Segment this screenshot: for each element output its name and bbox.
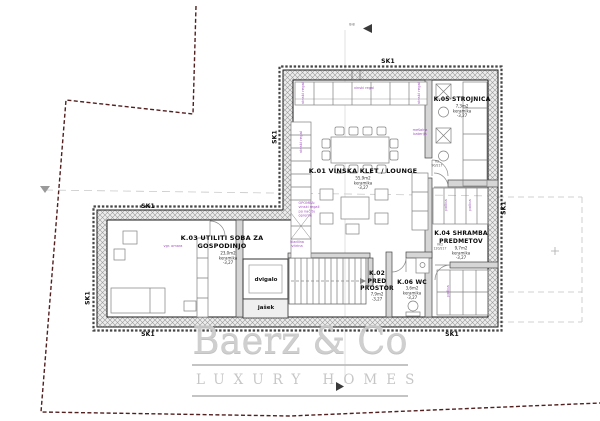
room-info-k01: 55,9m2keramika-3,27 (354, 176, 372, 190)
door-tag-v2: V290/217 (431, 160, 442, 167)
annotation-note: OPOMBA:vinski regali po načrtuopreme (298, 201, 319, 218)
floor-plan-drawing: K.01 VINSKA KLET / LOUNGE 55,9m2keramika… (0, 0, 600, 421)
wall-tag-sk1-wing-top: SK1 (141, 203, 155, 211)
room-info-k06: 3,6m2keramika-3,27 (403, 286, 421, 300)
room-info-k05: 7,3m2keramika-3,27 (453, 104, 471, 118)
dining-table (331, 137, 389, 163)
annotation-wardrobe: vgr. omara (164, 244, 183, 248)
watermark-rule-top (192, 364, 408, 366)
watermark-brand: Baerz & Co (190, 322, 410, 359)
annotation-shelf-2: polica (468, 199, 473, 210)
wall-tag-sk1-top: SK1 (381, 58, 395, 66)
wall-tag-sk1-bottom-left: SK1 (141, 331, 155, 339)
room-label-k02: K.02PREDPROSTOR (360, 270, 394, 293)
room-info-k02: 7,9m2-3,27 (371, 292, 384, 302)
shaft-label: jašek (258, 305, 274, 311)
watermark: Baerz & Co LUXURY HOMES (190, 322, 410, 397)
room-label-k01: K.01 VINSKA KLET / LOUNGE (309, 167, 418, 175)
annotation-cooler: hladilnavitrina (290, 240, 304, 248)
wall-tag-sk1-wing-left: SK1 (84, 291, 92, 305)
annotation-shelf-3: polica (446, 285, 451, 296)
toilet-icon (408, 301, 418, 311)
stairs (289, 258, 366, 304)
annotation-wine-rack-corner-right: vinski regal (417, 82, 422, 104)
wall-tag-sk1-right: SK1 (500, 201, 508, 215)
section-marker-b-top-icon (363, 24, 372, 33)
bed (111, 288, 165, 313)
annotation-shelf-1: polica (444, 199, 449, 210)
room-label-k05: K.05 STROJNICA (434, 96, 491, 104)
side-cabinet (412, 173, 428, 230)
wall-tag-sk1-left-upper: SK1 (271, 130, 279, 144)
annotation-mixer: mešalnabaterija (413, 128, 428, 136)
section-marker-a-icon (40, 186, 50, 193)
room-label-k03: K.03 UTILITI SOBA ZAGOSPODINJO (181, 234, 264, 250)
door-tag-vk2: VK2120/217 (433, 243, 446, 250)
watermark-tagline: LUXURY HOMES (190, 372, 410, 388)
wine-cellar-furniture (291, 70, 428, 258)
wall-tag-sk1-bottom-right: SK1 (445, 331, 459, 339)
survey-cross (551, 247, 559, 255)
annotation-wine-rack-corner-left: vinski regal (301, 82, 306, 104)
watermark-rule-bottom (192, 395, 408, 397)
section-mark-label: B-B (349, 23, 354, 27)
annotation-wine-rack-top: vinski regal (354, 86, 374, 90)
elevator-label: dvigalo (255, 277, 278, 283)
lounge-seating (320, 189, 388, 234)
room-info-k04: 9,7m2keramika-3,27 (452, 246, 470, 260)
annotation-wine-rack-column: vinski regal (299, 131, 304, 153)
room-info-k03: 23,0m2keramika-3,27 (219, 251, 237, 265)
